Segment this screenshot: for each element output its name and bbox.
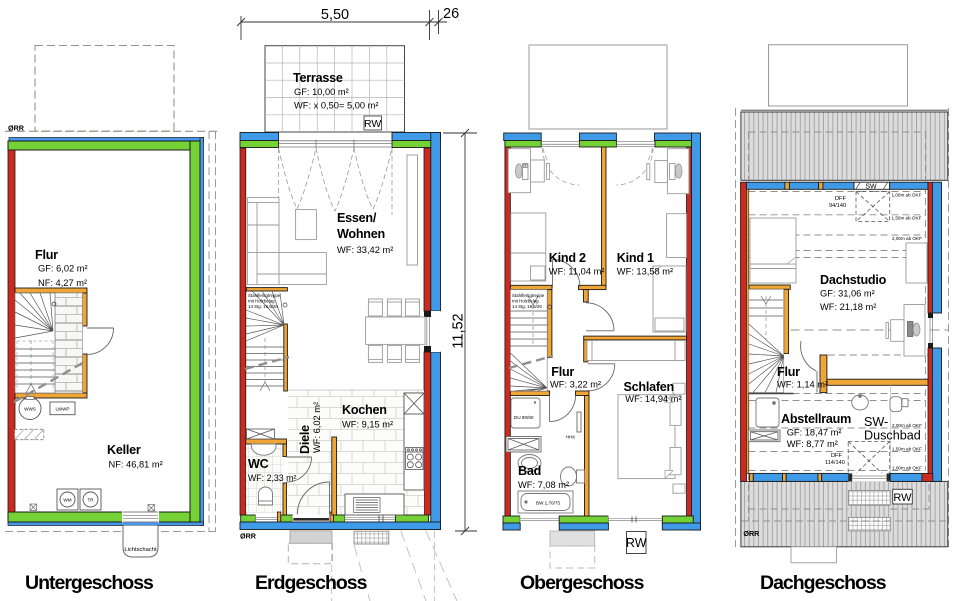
svg-text:DFF: DFF [835, 196, 846, 202]
svg-text:GF: 31,06 m²: GF: 31,06 m² [820, 289, 875, 299]
svg-text:Flur: Flur [35, 248, 58, 262]
svg-text:Erdgeschoss: Erdgeschoss [255, 572, 368, 594]
svg-text:WF: 2,33 m²: WF: 2,33 m² [248, 473, 296, 483]
svg-text:Diele: Diele [298, 425, 312, 454]
svg-text:Kind 1: Kind 1 [617, 251, 654, 265]
svg-text:Wohnen: Wohnen [337, 227, 385, 241]
svg-text:WF: 1,14 m²: WF: 1,14 m² [777, 380, 828, 390]
svg-text:WF: 14,94 m²: WF: 14,94 m² [625, 394, 681, 404]
svg-text:94/140: 94/140 [829, 203, 846, 209]
svg-text:GF: 10,00 m²: GF: 10,00 m² [294, 87, 349, 97]
svg-text:1,50m ab OKF: 1,50m ab OKF [892, 216, 922, 221]
svg-text:Obergeschoss: Obergeschoss [520, 572, 645, 594]
svg-text:mit Holzbelag: mit Holzbelag [512, 299, 539, 304]
svg-text:RW: RW [626, 536, 647, 550]
svg-text:GF: 18,47 m²: GF: 18,47 m² [787, 428, 842, 438]
svg-text:NF: 46,81 m²: NF: 46,81 m² [109, 460, 163, 470]
svg-text:DFF: DFF [831, 453, 842, 459]
svg-text:WM: WM [63, 498, 71, 503]
svg-text:BW 1,70/75: BW 1,70/75 [536, 501, 560, 506]
svg-text:WF: 7,08 m²: WF: 7,08 m² [518, 480, 569, 490]
svg-text:LWWP: LWWP [56, 407, 70, 412]
svg-text:WC: WC [248, 457, 269, 471]
svg-text:Kind 2: Kind 2 [549, 251, 586, 265]
svg-text:WF: 11,04 m²: WF: 11,04 m² [549, 267, 605, 277]
svg-text:DU 90/90: DU 90/90 [514, 415, 534, 420]
svg-text:5,50: 5,50 [321, 7, 349, 23]
svg-text:Kochen: Kochen [342, 403, 387, 417]
svg-text:1,00m ab OKF: 1,00m ab OKF [892, 193, 922, 198]
svg-text:Schlafen: Schlafen [624, 380, 675, 394]
svg-text:Dachgeschoss: Dachgeschoss [760, 572, 887, 594]
svg-text:ØRR: ØRR [8, 124, 25, 133]
svg-text:GF: 6,02 m²: GF: 6,02 m² [38, 264, 88, 274]
svg-text:14 Stg. 19,5/26: 14 Stg. 19,5/26 [248, 304, 278, 309]
svg-text:Duschbad: Duschbad [864, 429, 921, 443]
svg-text:Stahlfertigtreppe: Stahlfertigtreppe [512, 293, 545, 298]
svg-text:HHK: HHK [566, 435, 575, 440]
svg-text:ØRR: ØRR [743, 529, 760, 538]
svg-text:Untergeschoss: Untergeschoss [25, 572, 154, 594]
svg-text:Bad: Bad [518, 464, 541, 478]
svg-text:Abstellraum: Abstellraum [781, 412, 851, 426]
svg-text:Flur: Flur [551, 365, 574, 379]
svg-text:14 Stg. 19,5/26: 14 Stg. 19,5/26 [512, 304, 542, 309]
svg-text:26: 26 [443, 6, 459, 22]
svg-text:RW: RW [893, 492, 912, 504]
svg-text:TR: TR [87, 498, 94, 503]
svg-text:ØRR: ØRR [240, 532, 257, 541]
svg-text:NF: 4,27 m²: NF: 4,27 m² [38, 278, 87, 288]
svg-text:Stahlfertigtreppe: Stahlfertigtreppe [248, 293, 281, 298]
svg-text:Keller: Keller [107, 443, 141, 457]
svg-text:114/140: 114/140 [825, 460, 845, 466]
svg-text:WF: 13,58 m²: WF: 13,58 m² [617, 267, 673, 277]
svg-text:WF: 3,22 m²: WF: 3,22 m² [550, 380, 601, 390]
svg-text:WF: 21,18 m²: WF: 21,18 m² [820, 302, 876, 312]
svg-text:Dachstudio: Dachstudio [820, 273, 887, 287]
svg-text:RW: RW [364, 118, 381, 130]
svg-text:2,00m ab OKF: 2,00m ab OKF [892, 423, 922, 428]
svg-text:Essen/: Essen/ [337, 211, 377, 225]
svg-text:2,00m ab OKF: 2,00m ab OKF [892, 236, 922, 241]
svg-text:WF: x 0,50= 5,00 m²: WF: x 0,50= 5,00 m² [294, 101, 378, 111]
svg-text:mit Holzbelag: mit Holzbelag [248, 299, 275, 304]
svg-text:WF: 9,15 m²: WF: 9,15 m² [342, 420, 393, 430]
svg-text:Lichtschacht: Lichtschacht [124, 547, 157, 553]
svg-text:WF: 33,42 m²: WF: 33,42 m² [337, 245, 393, 255]
svg-text:Terrasse: Terrasse [293, 71, 343, 85]
svg-text:1,50m ab OKF: 1,50m ab OKF [892, 447, 922, 452]
svg-text:WWS: WWS [24, 407, 36, 412]
svg-text:11,52: 11,52 [451, 313, 467, 348]
svg-text:1,00m ab OKF: 1,00m ab OKF [892, 466, 922, 471]
svg-text:SW: SW [865, 184, 877, 191]
svg-text:WF: 6,02 m²: WF: 6,02 m² [312, 402, 322, 453]
svg-text:SW-: SW- [864, 415, 888, 429]
svg-text:WF: 8,77 m²: WF: 8,77 m² [787, 439, 838, 449]
svg-text:Flur: Flur [777, 365, 800, 379]
